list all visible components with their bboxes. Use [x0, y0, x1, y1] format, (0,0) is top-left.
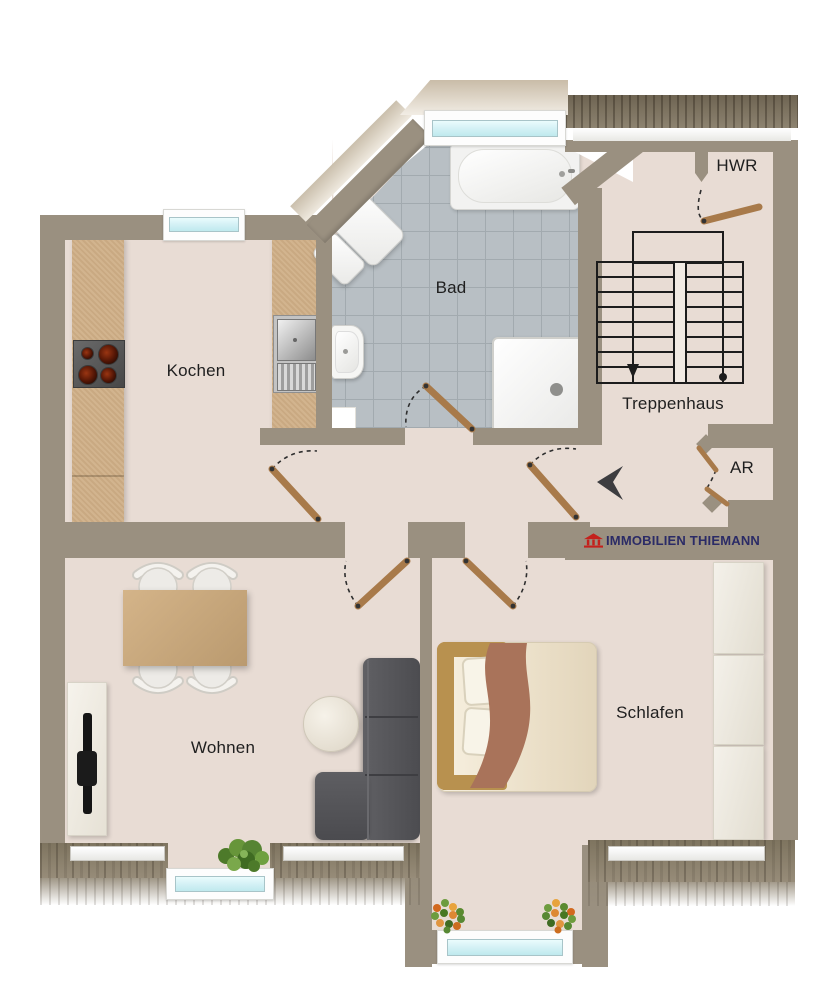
bed-headboard-top	[437, 642, 507, 657]
pillow-icon	[461, 707, 503, 758]
burner-icon	[78, 365, 98, 385]
wall-kitchen-bottom	[40, 522, 345, 558]
kitchen-sink-icon	[273, 315, 320, 393]
stove-icon	[73, 340, 125, 388]
bathroom-window	[424, 110, 566, 146]
sofa-seam	[365, 716, 418, 718]
wall-hall-center	[408, 522, 465, 558]
wardrobe-segment	[713, 746, 764, 840]
kitchen-window	[163, 209, 245, 241]
shower-icon	[492, 337, 584, 433]
wohnen-window	[166, 868, 274, 900]
wardrobe-segment	[713, 562, 764, 654]
wall-hall-treppenhaus	[578, 188, 602, 445]
room-label-ar: AR	[730, 458, 754, 478]
pillow-icon	[461, 656, 503, 707]
window-recess-wohnen	[168, 843, 270, 871]
wall-top-row-right	[565, 140, 798, 152]
floor-bay	[430, 845, 582, 937]
radiator	[70, 846, 165, 861]
wall-ar-top	[708, 424, 773, 448]
wall-niche	[330, 407, 356, 430]
burner-icon	[98, 344, 119, 365]
room-label-wohnen: Wohnen	[191, 738, 255, 758]
roof-fade-bottom-schlafen	[588, 880, 795, 906]
wall-partition-wohnen-schlafen	[420, 556, 432, 845]
bed-headboard	[437, 642, 454, 790]
roof-band-top-right	[565, 95, 798, 128]
wall-right-outer	[773, 150, 798, 840]
washbasin-icon	[330, 325, 364, 379]
wall-kitchen-bad	[316, 240, 332, 428]
wardrobe-segment	[713, 655, 764, 745]
radiator	[283, 846, 404, 861]
room-label-bad: Bad	[436, 278, 467, 298]
wall-bad-bottom-left	[332, 428, 405, 445]
burner-icon	[81, 347, 94, 360]
bathtub-icon	[450, 142, 580, 210]
kitchen-counter-seam	[72, 475, 124, 477]
company-name: IMMOBILIEN THIEMANN	[606, 533, 760, 548]
floor-plan: Bad Kochen HWR Treppenhaus AR Wohnen Sch…	[0, 0, 840, 1000]
house-icon	[584, 533, 603, 548]
bed-headboard-bottom	[437, 775, 507, 790]
wall-ar-bottom	[728, 500, 773, 527]
sofa-seam	[365, 774, 418, 776]
burner-icon	[100, 367, 117, 384]
bay-window	[437, 930, 573, 964]
wall-under-counter	[260, 428, 332, 445]
side-table-icon	[303, 696, 359, 752]
room-label-schlafen: Schlafen	[616, 703, 684, 723]
room-label-treppenhaus: Treppenhaus	[622, 394, 724, 414]
roof-ledge-top-right	[573, 128, 791, 141]
radiator	[608, 846, 765, 861]
sofa-icon	[363, 658, 420, 840]
tv-icon-center	[77, 751, 97, 786]
dining-table-icon	[123, 590, 247, 666]
room-label-hwr: HWR	[716, 156, 757, 176]
room-label-kochen: Kochen	[167, 361, 226, 381]
company-logo: IMMOBILIEN THIEMANN	[584, 533, 760, 548]
sofa-icon-foot	[315, 772, 370, 840]
sofa-seam	[367, 660, 369, 840]
